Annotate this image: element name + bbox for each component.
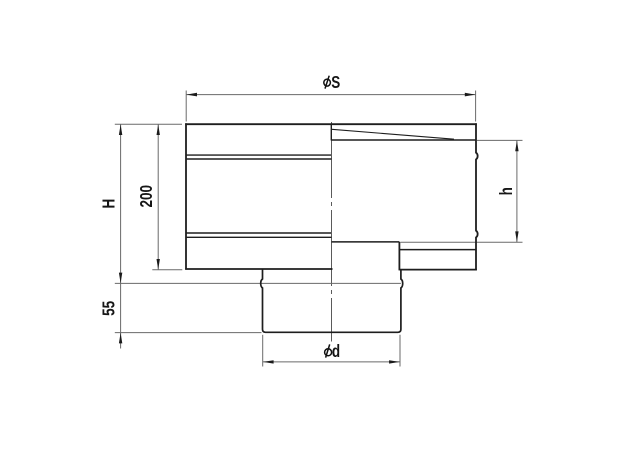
svg-text:55: 55 — [100, 301, 119, 316]
svg-text:d: d — [332, 342, 340, 361]
svg-text:h: h — [497, 187, 516, 195]
svg-text:H: H — [100, 199, 119, 209]
svg-text:S: S — [331, 73, 340, 92]
svg-text:200: 200 — [137, 185, 156, 208]
